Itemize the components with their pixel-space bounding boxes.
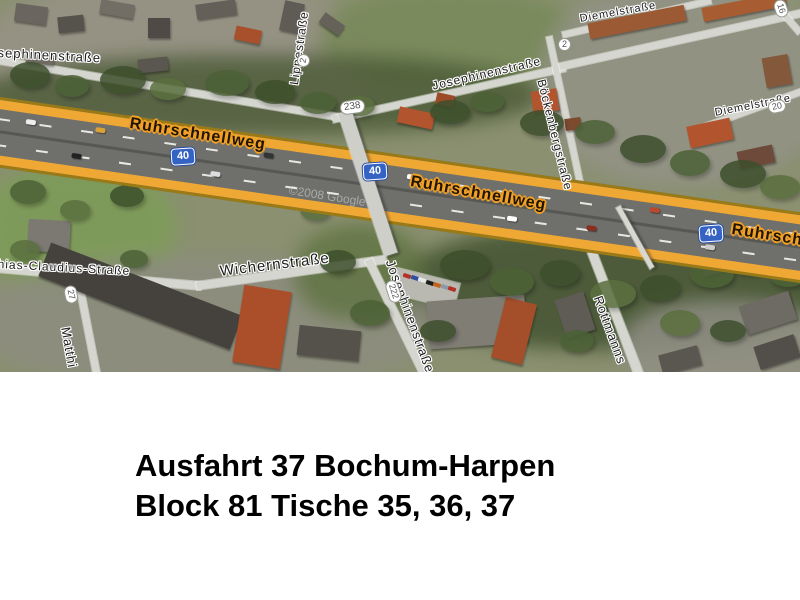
vehicle [705,244,716,250]
tree-canopy [575,120,615,144]
tree-canopy [205,70,249,96]
presentation-slide: sephinenstraße Lippestraße Josephinenstr… [0,0,800,600]
a40-badge-west: 40 [172,148,195,165]
tree-canopy [560,330,594,352]
tree-canopy [150,78,186,100]
vehicle [507,216,518,222]
building [762,54,793,88]
caption-line-exit: Ausfahrt 37 Bochum-Harpen [135,446,555,486]
tree-canopy [620,135,666,163]
building [148,18,170,38]
tree-canopy [490,268,534,296]
tree-canopy [55,75,89,97]
slide-caption: Ausfahrt 37 Bochum-Harpen Block 81 Tisch… [135,446,555,526]
tree-canopy [110,185,144,207]
tree-canopy [300,92,336,114]
tree-canopy [760,175,800,199]
tree-canopy [640,275,680,301]
tree-canopy [670,150,710,176]
tree-canopy [350,300,390,326]
tree-canopy [440,250,490,280]
tree-canopy [60,200,90,220]
vehicle [26,119,37,125]
tree-canopy [720,160,766,188]
tree-canopy [540,260,580,286]
tree-canopy [10,62,50,88]
a40-badge-east: 40 [700,225,723,242]
tree-canopy [660,310,700,336]
tree-canopy [100,66,146,94]
house-number-badge-2-boecken: 2 [558,38,571,51]
map-image: sephinenstraße Lippestraße Josephinenstr… [0,0,800,372]
building [297,325,362,361]
building [57,15,85,34]
tree-canopy [430,100,470,124]
a40-badge-center: 40 [364,163,387,180]
tree-canopy [710,320,746,342]
tree-canopy [470,92,504,112]
caption-line-block: Block 81 Tische 35, 36, 37 [135,486,555,526]
vehicle [71,153,82,159]
tree-canopy [10,180,46,204]
